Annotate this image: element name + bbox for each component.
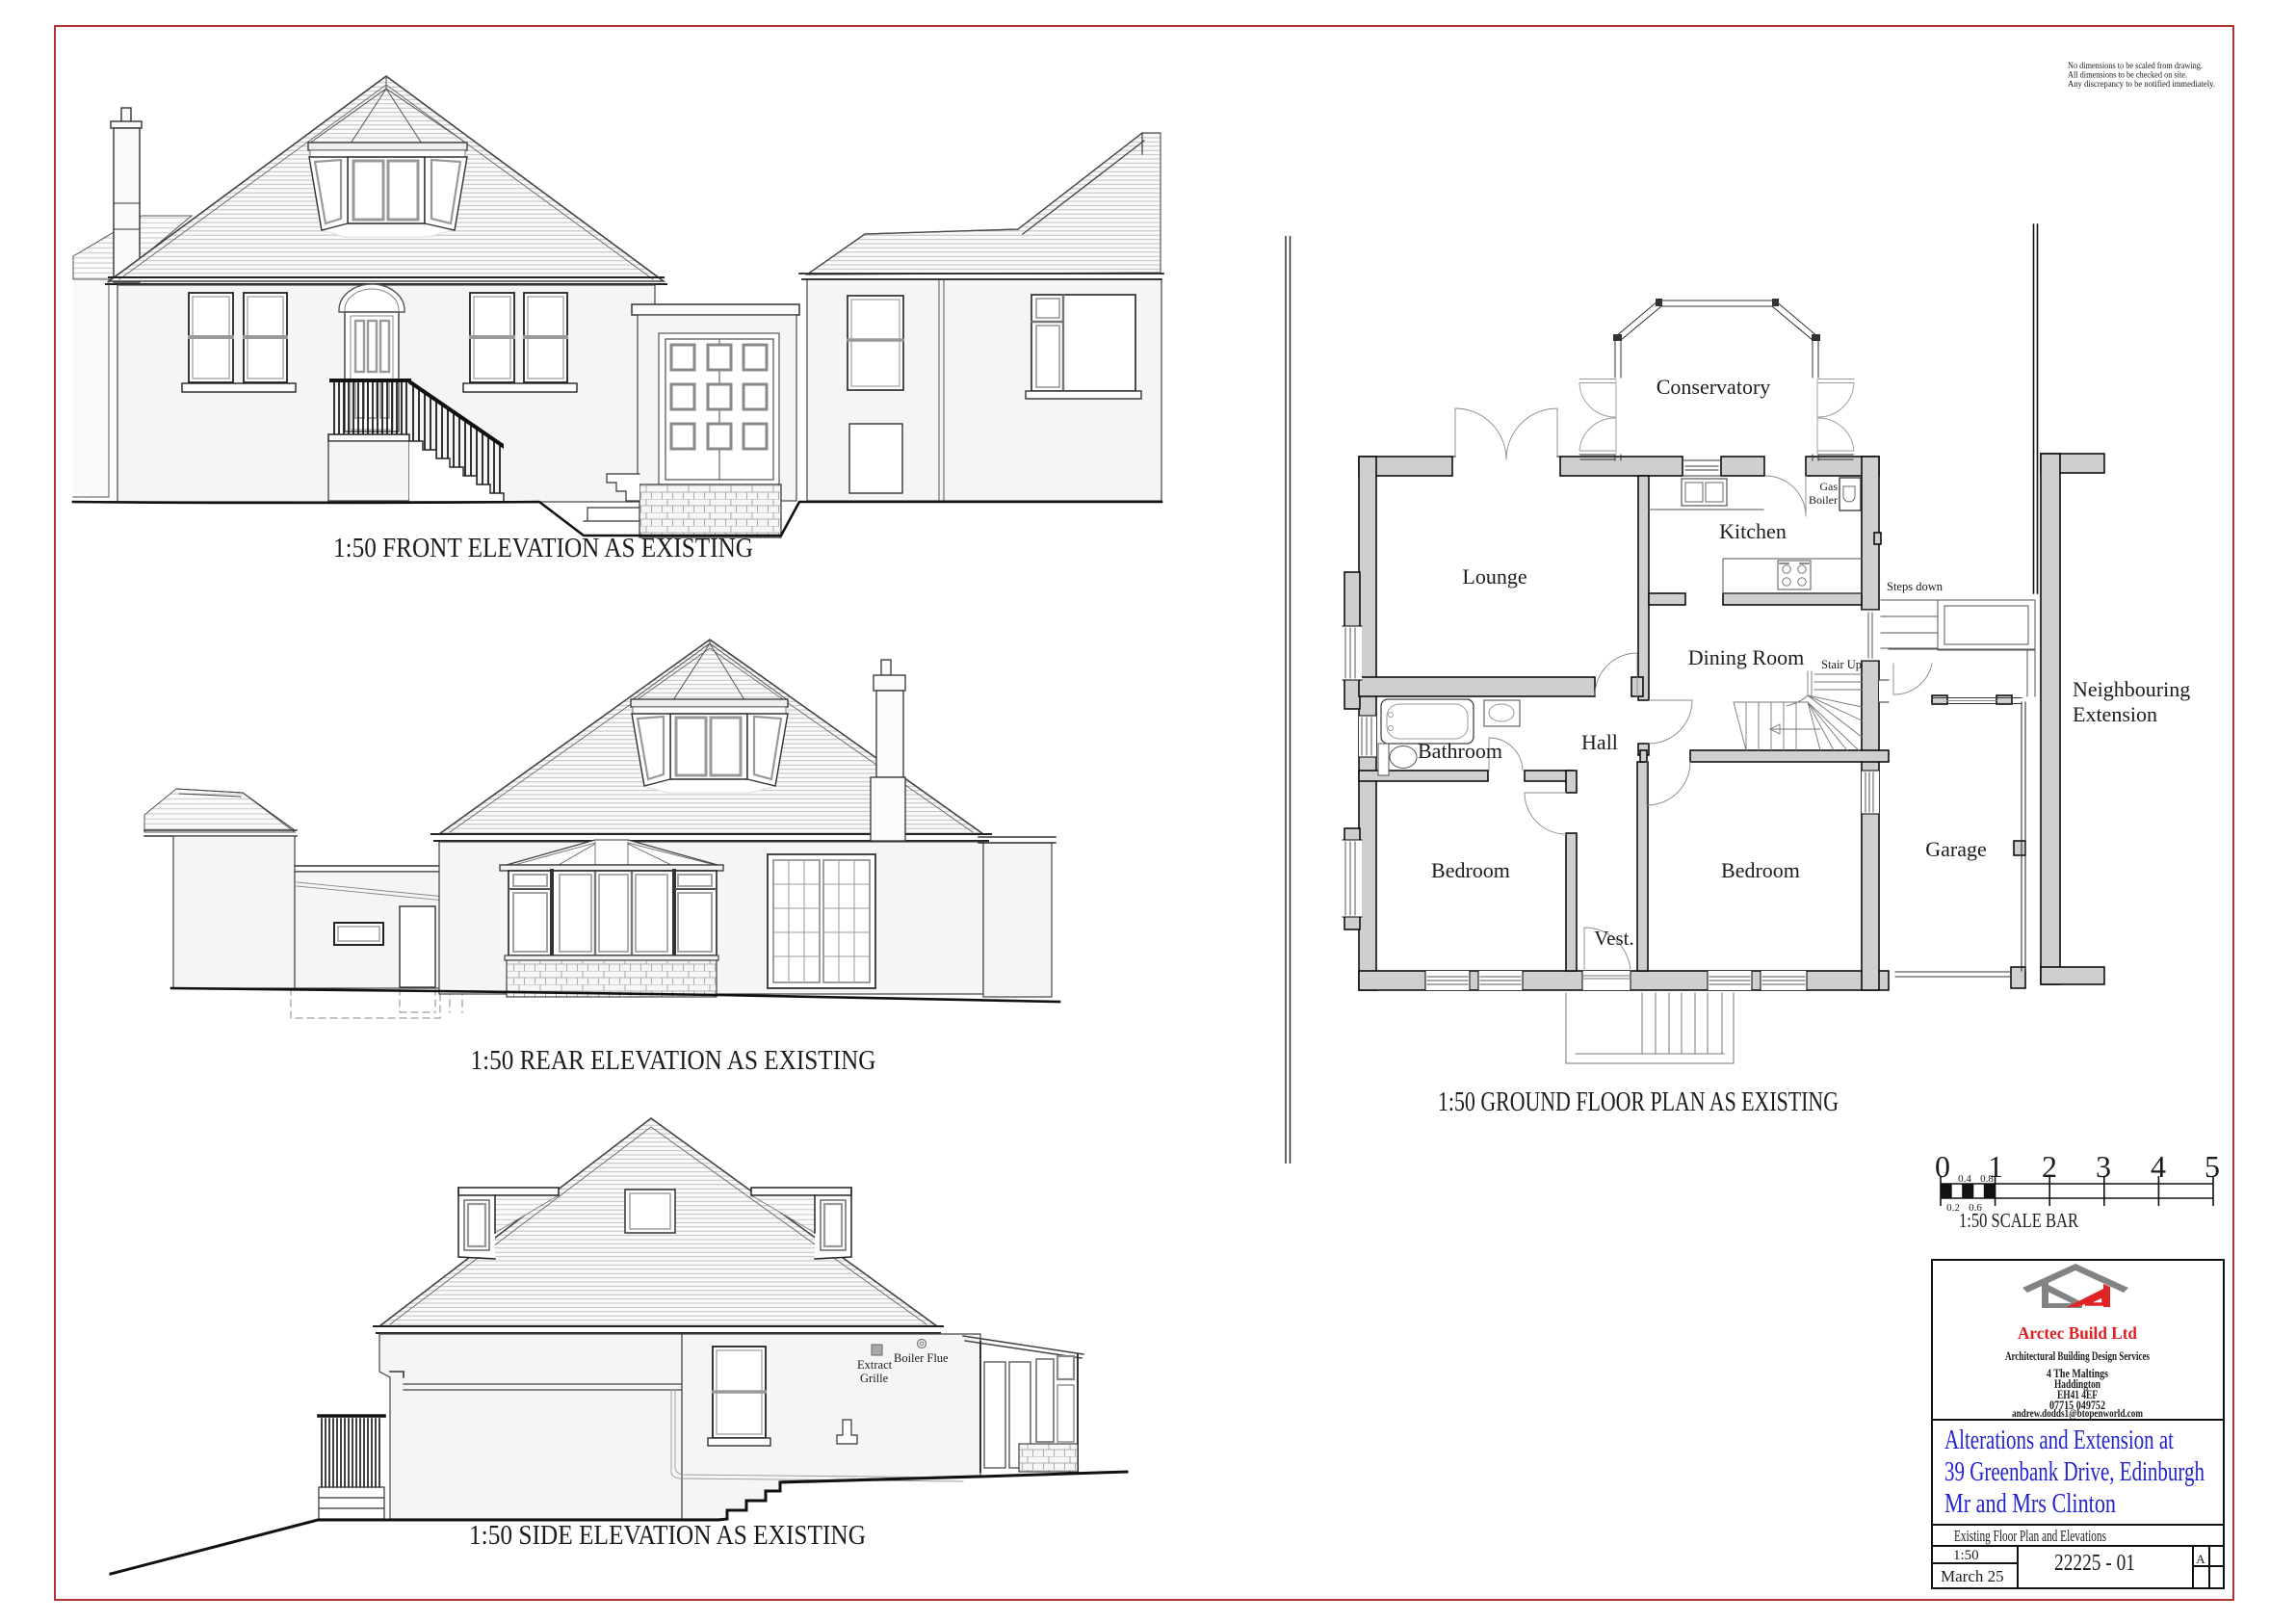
svg-text:A: A	[2196, 1552, 2205, 1566]
svg-text:Stair Up: Stair Up	[1821, 658, 1862, 671]
svg-text:Conservatory: Conservatory	[1657, 375, 1771, 399]
svg-text:Existing Floor Plan and Elevat: Existing Floor Plan and Elevations	[1954, 1527, 2106, 1545]
svg-text:Architectural Building Design: Architectural Building Design Services	[2005, 1348, 2150, 1363]
svg-text:Bedroom: Bedroom	[1431, 858, 1510, 882]
svg-text:Boiler Flue: Boiler Flue	[894, 1351, 949, 1365]
svg-text:Hall: Hall	[1581, 730, 1618, 754]
svg-text:Lounge: Lounge	[1462, 564, 1526, 589]
svg-text:1:50 REAR ELEVATION AS EXISTIN: 1:50 REAR ELEVATION AS EXISTING	[471, 1045, 876, 1076]
svg-text:Arctec Build Ltd: Arctec Build Ltd	[2018, 1323, 2137, 1343]
svg-text:Bedroom: Bedroom	[1721, 858, 1800, 882]
svg-text:1:50 SCALE BAR: 1:50 SCALE BAR	[1959, 1209, 2078, 1232]
svg-text:Boiler: Boiler	[1809, 493, 1838, 507]
svg-text:0: 0	[1935, 1149, 1950, 1184]
svg-text:1:50: 1:50	[1953, 1548, 1979, 1563]
svg-text:Vest.: Vest.	[1594, 927, 1633, 950]
svg-text:Bathroom: Bathroom	[1418, 739, 1502, 763]
svg-text:Steps down: Steps down	[1887, 580, 1944, 593]
svg-text:1:50 SIDE ELEVATION AS EXISTIN: 1:50 SIDE ELEVATION AS EXISTING	[469, 1520, 866, 1551]
svg-text:andrew.dodds1@btopenworld.com: andrew.dodds1@btopenworld.com	[2012, 1408, 2143, 1420]
svg-text:1:50 GROUND FLOOR PLAN AS EXIS: 1:50 GROUND FLOOR PLAN AS EXISTING	[1438, 1086, 1839, 1117]
svg-text:All dimensions to be checked o: All dimensions to be checked on site.	[2068, 71, 2187, 81]
svg-text:No dimensions to be scaled fro: No dimensions to be scaled from drawing.	[2068, 61, 2203, 71]
svg-text:Kitchen: Kitchen	[1719, 519, 1787, 543]
svg-text:Dining Room: Dining Room	[1688, 645, 1804, 669]
svg-text:22225 - 01: 22225 - 01	[2054, 1551, 2135, 1576]
svg-text:0.2: 0.2	[1946, 1202, 1960, 1214]
svg-text:Extension: Extension	[2073, 702, 2157, 726]
svg-text:1:50 FRONT ELEVATION AS EXISTI: 1:50 FRONT ELEVATION AS EXISTING	[333, 533, 753, 563]
svg-text:5: 5	[2205, 1149, 2220, 1184]
svg-text:39 Greenbank Drive, Edinburgh: 39 Greenbank Drive, Edinburgh	[1944, 1457, 2205, 1487]
svg-text:Extract: Extract	[857, 1358, 893, 1372]
svg-text:Grille: Grille	[860, 1372, 889, 1385]
svg-text:Alterations and Extension at: Alterations and Extension at	[1944, 1426, 2174, 1455]
svg-text:March 25: March 25	[1941, 1567, 2004, 1585]
svg-text:Gas: Gas	[1819, 480, 1838, 493]
svg-text:Mr and Mrs Clinton: Mr and Mrs Clinton	[1944, 1489, 2116, 1519]
svg-text:Garage: Garage	[1925, 837, 1987, 861]
svg-text:Any discrepancy to be notified: Any discrepancy to be notified immediate…	[2068, 79, 2215, 90]
svg-text:Neighbouring: Neighbouring	[2073, 677, 2190, 701]
